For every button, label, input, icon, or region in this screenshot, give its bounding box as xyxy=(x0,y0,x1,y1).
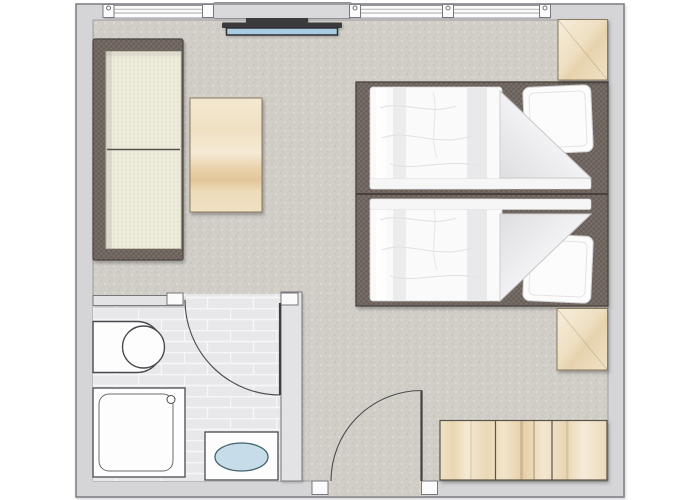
wall-pier-panel xyxy=(213,3,352,19)
nightstand-top xyxy=(558,20,608,81)
coffee-table: coffee table xyxy=(190,98,262,212)
sofa-cushion-shade xyxy=(106,52,181,57)
bed-2-sheet-band xyxy=(370,199,591,210)
bed-2-duvet xyxy=(370,199,502,301)
tv-stand-bar xyxy=(222,23,342,29)
shower-drain xyxy=(167,396,175,404)
bathroom-partition-right xyxy=(281,292,302,481)
washbasin: washbasin with blue bowl xyxy=(205,432,278,480)
bathroom: toilet shower tray with drain washbasin … xyxy=(93,292,302,481)
wardrobe-grain-streak xyxy=(520,421,523,480)
wardrobe-grain-streak xyxy=(470,421,472,480)
wardrobe-body xyxy=(440,421,607,481)
nightstand-bottom xyxy=(557,309,608,371)
bed-1-duvet xyxy=(370,87,502,189)
toilet: toilet xyxy=(93,322,165,373)
entry-threshold-texture xyxy=(328,481,422,497)
floor-plan-svg: flat-screen TV two-seat sofa coffee tabl… xyxy=(0,0,700,500)
window-mullion xyxy=(203,5,214,18)
shower: shower tray with drain xyxy=(93,388,185,477)
bed-1 xyxy=(370,85,593,189)
bathroom-door-jamb-left xyxy=(167,293,183,305)
entry-door-jamb-left xyxy=(312,481,328,495)
entry-door-jamb-right xyxy=(422,481,438,495)
tv-mount xyxy=(246,18,308,23)
tv-screen xyxy=(227,28,338,35)
bed-2 xyxy=(370,199,593,303)
beds: twin beds xyxy=(356,82,608,306)
bathroom-door-jamb-right xyxy=(281,293,298,305)
toilet-bowl xyxy=(123,326,165,368)
sofa: two-seat sofa xyxy=(93,39,183,260)
bed-1-sheet-band xyxy=(370,179,591,190)
wardrobe-grain-streak xyxy=(566,421,569,480)
floor-plan-page: flat-screen TV two-seat sofa coffee tabl… xyxy=(0,0,700,500)
bathroom-doorway-floor xyxy=(183,294,281,305)
washbasin-bowl xyxy=(215,443,268,471)
wardrobe-grain-streak xyxy=(533,421,535,480)
coffee-table-top xyxy=(190,98,262,212)
wardrobe: wardrobe xyxy=(440,421,607,481)
